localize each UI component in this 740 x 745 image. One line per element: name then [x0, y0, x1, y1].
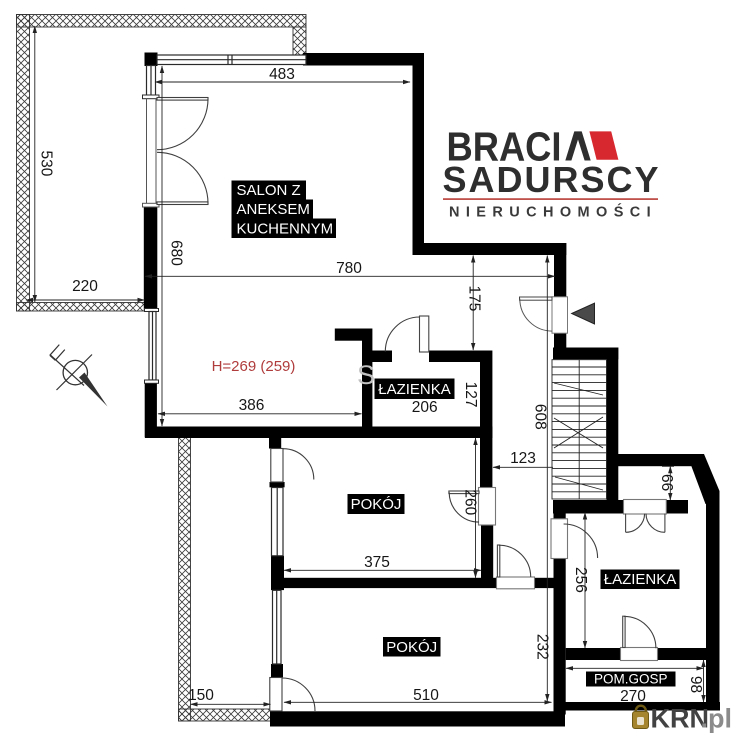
svg-text:NIERUCHOMOŚCI: NIERUCHOMOŚCI [449, 203, 657, 221]
svg-text:KUCHENNYM: KUCHENNYM [237, 221, 334, 238]
svg-text:150: 150 [188, 687, 214, 704]
svg-text:510: 510 [413, 687, 439, 704]
svg-text:98: 98 [687, 676, 704, 693]
svg-text:127: 127 [462, 382, 479, 408]
svg-text:780: 780 [336, 260, 362, 277]
svg-text:386: 386 [239, 397, 265, 414]
svg-text:SADURSCY: SADURSCY [443, 159, 661, 200]
svg-text:483: 483 [269, 66, 295, 83]
svg-text:123: 123 [510, 450, 536, 467]
svg-text:ŁAZIENKA: ŁAZIENKA [378, 381, 451, 398]
svg-text:608: 608 [532, 404, 549, 430]
svg-text:375: 375 [364, 554, 390, 571]
svg-text:530: 530 [38, 151, 55, 177]
svg-text:POM.GOSP: POM.GOSP [594, 672, 668, 687]
svg-text:256: 256 [572, 567, 589, 593]
svg-text:220: 220 [72, 278, 98, 295]
svg-text:ŁAZIENKA: ŁAZIENKA [604, 571, 677, 588]
svg-text:.pl: .pl [701, 704, 733, 734]
svg-text:680: 680 [168, 240, 185, 266]
svg-text:260: 260 [462, 489, 479, 515]
svg-text:232: 232 [534, 634, 551, 660]
svg-text:SALON Z: SALON Z [237, 182, 301, 199]
svg-text:175: 175 [465, 286, 482, 312]
svg-text:206: 206 [412, 399, 438, 416]
svg-text:POKÓJ: POKÓJ [386, 639, 437, 656]
svg-text:S: S [357, 360, 375, 390]
svg-text:66: 66 [658, 474, 675, 491]
svg-text:ANEKSEM: ANEKSEM [237, 201, 310, 218]
svg-text:270: 270 [620, 688, 646, 705]
svg-text:H=269 (259): H=269 (259) [212, 358, 296, 375]
svg-text:POKÓJ: POKÓJ [351, 496, 402, 513]
